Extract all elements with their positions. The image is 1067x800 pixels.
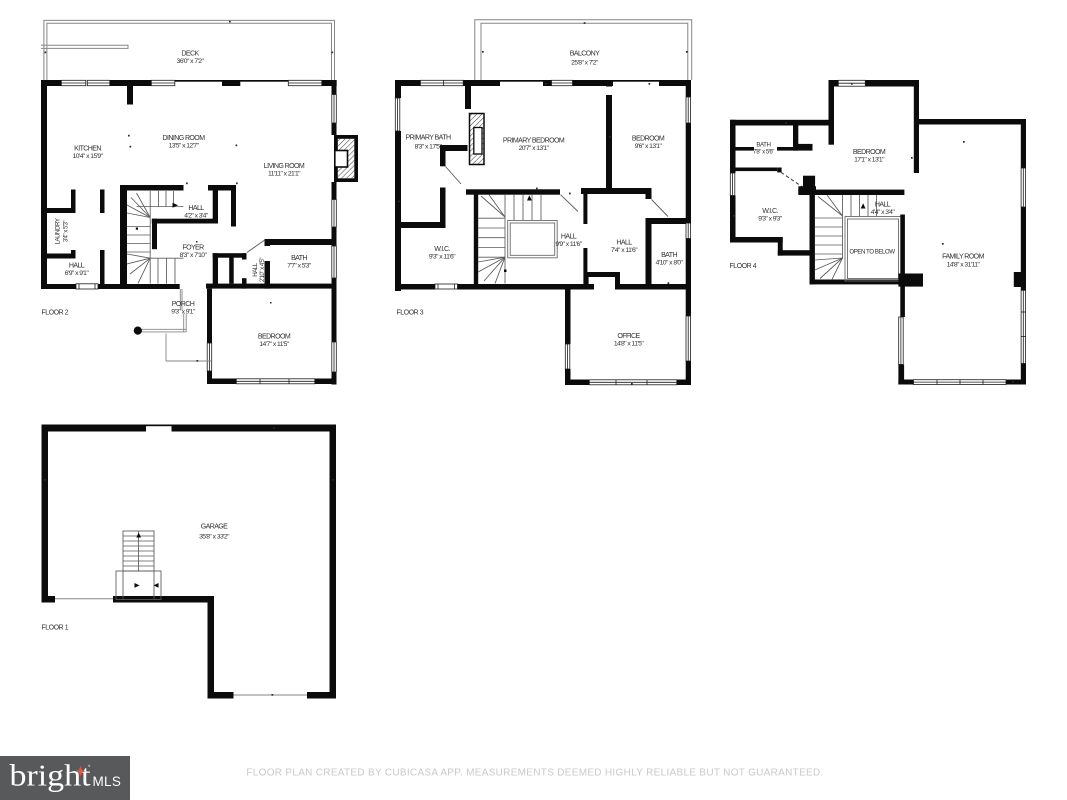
svg-text:HALL: HALL [561, 234, 577, 241]
svg-text:14'8" x 11'5": 14'8" x 11'5" [614, 341, 645, 348]
svg-text:FLOOR 1: FLOOR 1 [42, 625, 69, 632]
svg-text:W.I.C.: W.I.C. [762, 208, 778, 215]
svg-text:DECK: DECK [181, 51, 199, 58]
svg-text:FAMILY ROOM: FAMILY ROOM [942, 254, 984, 261]
svg-text:20'7" x 13'1": 20'7" x 13'1" [519, 145, 550, 152]
svg-text:13'5" x 12'7": 13'5" x 12'7" [169, 142, 200, 149]
svg-text:36'0" x 7'2": 36'0" x 7'2" [177, 58, 205, 65]
svg-text:PRIMARY BEDROOM: PRIMARY BEDROOM [503, 138, 565, 145]
svg-text:FOYER: FOYER [182, 245, 204, 252]
svg-text:PORCH: PORCH [172, 301, 195, 308]
svg-text:9'3" x 9'3": 9'3" x 9'3" [758, 216, 783, 223]
svg-text:7'8" x 5'6": 7'8" x 5'6" [753, 148, 774, 155]
svg-text:10'4" x 15'9": 10'4" x 15'9" [73, 153, 104, 160]
svg-text:MLS: MLS [93, 774, 122, 789]
svg-text:8'3" x 7'10": 8'3" x 7'10" [180, 252, 208, 259]
svg-text:9'3" x 9'1": 9'3" x 9'1" [171, 309, 196, 316]
svg-text:OPEN TO BELOW: OPEN TO BELOW [849, 249, 895, 256]
svg-text:HALL: HALL [252, 262, 259, 277]
svg-text:FLOOR PLAN CREATED BY CUBICASA: FLOOR PLAN CREATED BY CUBICASA APP. MEAS… [246, 767, 823, 778]
svg-text:PRIMARY BATH: PRIMARY BATH [406, 135, 451, 142]
svg-text:FLOOR 2: FLOOR 2 [42, 310, 69, 317]
svg-text:6'9" x 9'1": 6'9" x 9'1" [65, 270, 90, 277]
svg-text:BATH: BATH [756, 141, 770, 148]
svg-text:LAUNDRY: LAUNDRY [55, 218, 62, 244]
svg-text:GARAGE: GARAGE [201, 524, 228, 531]
svg-text:25'8" x 7'2": 25'8" x 7'2" [571, 60, 599, 67]
svg-text:OFFICE: OFFICE [617, 333, 640, 340]
svg-text:W.I.C.: W.I.C. [434, 246, 450, 253]
svg-text:KITCHEN: KITCHEN [74, 145, 101, 152]
svg-text:HALL: HALL [616, 240, 632, 247]
svg-text:9'9" x 11'6": 9'9" x 11'6" [555, 241, 582, 248]
svg-text:2'10" x 4'5": 2'10" x 4'5" [259, 258, 266, 282]
svg-text:11'11" x 21'1": 11'11" x 21'1" [268, 170, 301, 177]
svg-text:14'7" x 11'5": 14'7" x 11'5" [259, 341, 290, 348]
svg-text:7'4" x 11'6": 7'4" x 11'6" [611, 247, 638, 254]
svg-text:4'2" x 3'4": 4'2" x 3'4" [184, 212, 209, 219]
svg-text:3'4" x 5'3": 3'4" x 5'3" [63, 221, 70, 242]
svg-text:17'1" x 13'1": 17'1" x 13'1" [854, 157, 885, 164]
svg-text:FLOOR 4: FLOOR 4 [730, 263, 757, 270]
svg-text:HALL: HALL [188, 205, 204, 212]
svg-text:FLOOR 3: FLOOR 3 [397, 310, 424, 317]
svg-text:BATH: BATH [291, 255, 307, 262]
svg-text:9'6" x 13'1": 9'6" x 13'1" [635, 143, 663, 150]
svg-text:4'4" x 3'4": 4'4" x 3'4" [871, 209, 896, 216]
svg-text:HALL: HALL [69, 263, 85, 270]
svg-text:BATH: BATH [661, 252, 677, 259]
svg-text:bright: bright [10, 757, 91, 792]
svg-text:7'7" x 5'3": 7'7" x 5'3" [287, 262, 312, 269]
svg-text:35'8" x 33'2": 35'8" x 33'2" [199, 533, 230, 540]
svg-text:8'3" x 17'5": 8'3" x 17'5" [415, 144, 443, 151]
svg-text:BALCONY: BALCONY [570, 51, 600, 58]
svg-text:BEDROOM: BEDROOM [853, 149, 886, 156]
svg-text:14'8" x 31'11": 14'8" x 31'11" [947, 261, 981, 268]
svg-text:DINING ROOM: DINING ROOM [163, 135, 206, 142]
svg-text:BEDROOM: BEDROOM [632, 136, 665, 143]
svg-text:HALL: HALL [875, 202, 891, 209]
svg-text:9'3" x 11'6": 9'3" x 11'6" [429, 254, 456, 261]
svg-text:LIVING ROOM: LIVING ROOM [264, 163, 305, 170]
svg-text:BEDROOM: BEDROOM [258, 334, 291, 341]
svg-text:4'10" x 8'0": 4'10" x 8'0" [656, 260, 684, 267]
